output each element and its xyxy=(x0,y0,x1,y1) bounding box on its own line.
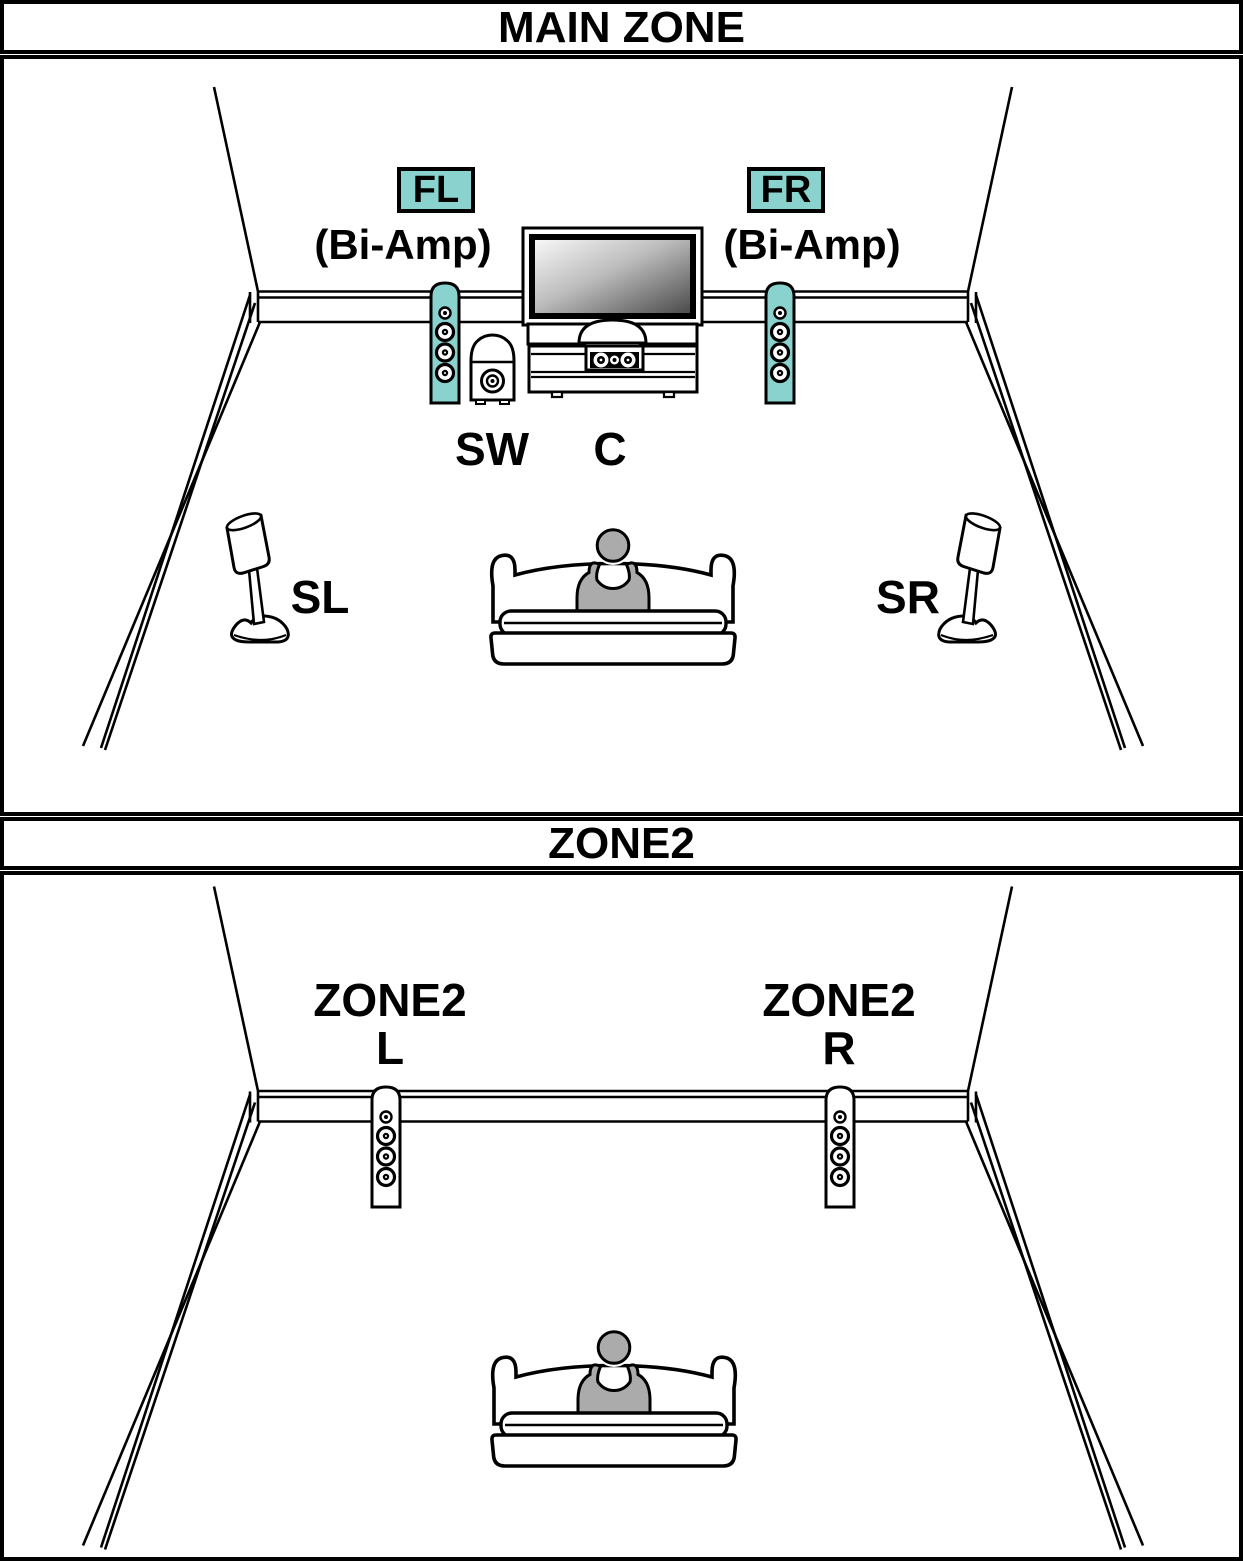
zone2-title: ZONE2 xyxy=(0,820,1243,868)
zone2-right-speaker-label: ZONE2 R xyxy=(729,976,949,1072)
zone2-right-label-line1: ZONE2 xyxy=(729,976,949,1024)
surround-right-label: SR xyxy=(838,574,978,620)
zone2-left-speaker-label: ZONE2 L xyxy=(280,976,500,1072)
front-left-badge: FL xyxy=(397,167,475,213)
tv-stand-base xyxy=(579,320,646,343)
front-right-tower-speaker xyxy=(766,283,794,403)
zone2-left-label-line2: L xyxy=(280,1024,500,1072)
front-left-tower-speaker xyxy=(431,283,459,403)
center-label: C xyxy=(540,426,680,472)
front-left-biamp-note: (Bi-Amp) xyxy=(253,224,553,266)
main-zone-title: MAIN ZONE xyxy=(0,4,1243,52)
zone2-left-tower-speaker xyxy=(372,1087,400,1207)
front-right-biamp-note: (Bi-Amp) xyxy=(662,224,962,266)
zone2-left-label-line1: ZONE2 xyxy=(280,976,500,1024)
center-speaker xyxy=(586,346,643,370)
front-right-badge: FR xyxy=(747,167,825,213)
surround-left-label: SL xyxy=(250,574,390,620)
zone2-right-label-line2: R xyxy=(729,1024,949,1072)
diagram-canvas xyxy=(0,0,1243,1561)
subwoofer xyxy=(471,335,514,404)
speaker-layout-diagram: MAIN ZONE ZONE2 FL FR (Bi-Amp) (Bi-Amp) … xyxy=(0,0,1243,1561)
zone2-right-tower-speaker xyxy=(826,1087,854,1207)
